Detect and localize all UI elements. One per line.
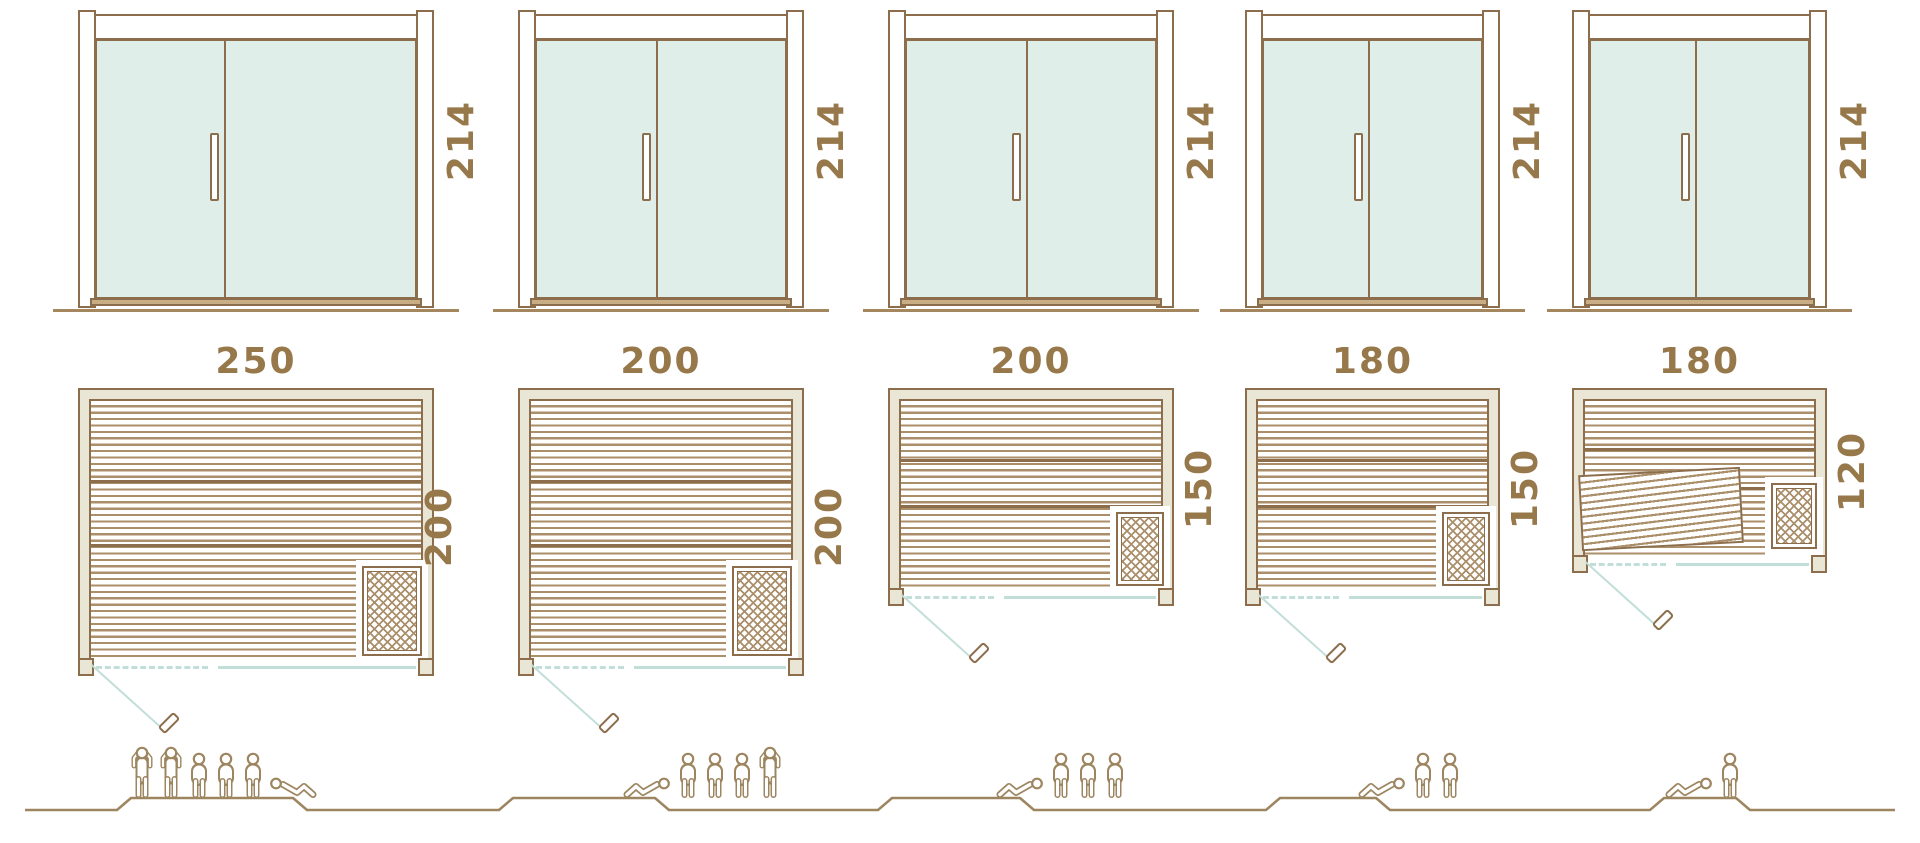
door-swing-line	[91, 664, 165, 731]
plan-width-label: 200	[518, 344, 804, 380]
door-opening-dashed-line	[96, 666, 208, 669]
door-handle-plan-icon	[1652, 609, 1675, 632]
ground-line	[863, 309, 1199, 312]
door-handle-icon	[1354, 133, 1363, 201]
plan-width-label: 250	[78, 344, 434, 380]
door-elevation-4	[1245, 10, 1500, 308]
ground-line	[493, 309, 829, 312]
heater-icon	[1442, 512, 1490, 586]
glass-door-leaf	[907, 41, 1028, 297]
door-frame-right	[416, 10, 434, 308]
capacity-group-2	[627, 748, 778, 795]
lying-person-icon	[271, 779, 313, 795]
plan-depth-label: 150	[1508, 448, 1544, 529]
sitting-person-icon	[1725, 754, 1735, 795]
door-frame-right	[1156, 10, 1174, 308]
glass-front	[1263, 40, 1482, 298]
heater-icon	[1116, 512, 1164, 586]
door-sill	[90, 298, 422, 306]
door-opening-dashed-line	[906, 596, 994, 599]
door-header	[1588, 14, 1811, 40]
door-height-label: 214	[1184, 100, 1220, 181]
sitting-person-icon	[1418, 754, 1428, 795]
ground-line	[1220, 309, 1525, 312]
heater-icon	[362, 566, 422, 656]
plan-depth-label: 200	[812, 486, 848, 567]
door-sill	[1584, 298, 1815, 306]
door-swing-line	[1258, 594, 1332, 661]
lying-person-icon	[1669, 779, 1711, 795]
door-swing-line	[901, 594, 975, 661]
door-handle-plan-icon	[968, 642, 991, 665]
door-frame-left	[1245, 10, 1263, 308]
sitting-person-icon	[1110, 754, 1120, 795]
plan-width-label: 180	[1245, 344, 1500, 380]
wall-foot-right	[788, 658, 804, 676]
standing-person-icon	[163, 748, 179, 795]
sitting-person-icon	[1056, 754, 1066, 795]
sitting-person-icon	[1445, 754, 1455, 795]
sitting-person-icon	[710, 754, 720, 795]
wall-foot-right	[1811, 555, 1827, 573]
door-height-label: 214	[814, 100, 850, 181]
door-height-label: 214	[444, 100, 480, 181]
glass-front	[906, 40, 1156, 298]
floor-plan-5	[1572, 388, 1827, 557]
heater-icon	[1771, 483, 1817, 549]
door-sill	[900, 298, 1162, 306]
glass-front	[96, 40, 416, 298]
standing-person-icon	[762, 748, 778, 795]
tilted-bench	[1578, 467, 1744, 551]
door-elevation-5	[1572, 10, 1827, 308]
door-header	[904, 14, 1158, 40]
door-handle-plan-icon	[1325, 642, 1348, 665]
plan-depth-label: 150	[1182, 448, 1218, 529]
plan-width-label: 200	[888, 344, 1174, 380]
capacity-group-1	[134, 748, 313, 795]
door-elevation-1	[78, 10, 434, 308]
sitting-person-icon	[683, 754, 693, 795]
capacity-group-4	[1362, 754, 1455, 795]
door-handle-icon	[642, 133, 651, 201]
plan-depth-label: 120	[1835, 431, 1871, 512]
door-opening-dashed-line	[1590, 563, 1666, 566]
plan-width-label: 180	[1572, 344, 1827, 380]
door-header	[94, 14, 418, 40]
door-frame-right	[1809, 10, 1827, 308]
capacity-group-5	[1669, 754, 1735, 795]
ground-line	[53, 309, 459, 312]
door-frame-right	[1482, 10, 1500, 308]
door-opening-dashed-line	[1263, 596, 1339, 599]
door-height-label: 214	[1837, 100, 1873, 181]
glass-front-line	[1004, 596, 1156, 599]
lying-person-icon	[627, 779, 669, 795]
lying-person-icon	[1000, 779, 1042, 795]
standing-person-icon	[134, 748, 150, 795]
sitting-person-icon	[1083, 754, 1093, 795]
wall-foot-right	[1484, 588, 1500, 606]
sitting-person-icon	[194, 754, 204, 795]
glass-door-leaf	[97, 41, 226, 297]
glass-front-line	[634, 666, 786, 669]
door-elevation-2	[518, 10, 804, 308]
wall-foot-right	[1158, 588, 1174, 606]
door-swing-line	[531, 664, 605, 731]
door-sill	[1257, 298, 1488, 306]
plan-depth-label: 200	[422, 486, 458, 567]
door-handle-plan-icon	[158, 712, 181, 735]
sitting-person-icon	[221, 754, 231, 795]
glass-front-line	[1349, 596, 1482, 599]
ground-profile-line	[25, 798, 1895, 810]
door-handle-plan-icon	[598, 712, 621, 735]
sauna-size-diagram: 214 250 200 214 200 200	[0, 0, 1920, 843]
door-handle-icon	[210, 133, 219, 201]
door-opening-dashed-line	[536, 666, 624, 669]
door-frame-left	[518, 10, 536, 308]
capacity-group-3	[1000, 754, 1120, 795]
door-frame-right	[786, 10, 804, 308]
wall-foot-right	[418, 658, 434, 676]
glass-front-line	[1676, 563, 1809, 566]
door-frame-left	[78, 10, 96, 308]
door-elevation-3	[888, 10, 1174, 308]
door-swing-line	[1585, 561, 1659, 628]
capacity-pictograms	[0, 740, 1920, 843]
glass-front-line	[218, 666, 416, 669]
door-frame-left	[1572, 10, 1590, 308]
glass-front	[536, 40, 786, 298]
door-header	[534, 14, 788, 40]
lying-person-icon	[1362, 779, 1404, 795]
sitting-person-icon	[737, 754, 747, 795]
door-handle-icon	[1012, 133, 1021, 201]
floor-plan-2	[518, 388, 804, 660]
floor-plan-4	[1245, 388, 1500, 590]
floor-plan-1	[78, 388, 434, 660]
door-handle-icon	[1681, 133, 1690, 201]
ground-line	[1547, 309, 1852, 312]
sitting-person-icon	[248, 754, 258, 795]
floor-plan-3	[888, 388, 1174, 590]
door-sill	[530, 298, 792, 306]
glass-front	[1590, 40, 1809, 298]
glass-door-leaf	[537, 41, 658, 297]
heater-icon	[732, 566, 792, 656]
door-header	[1261, 14, 1484, 40]
door-frame-left	[888, 10, 906, 308]
door-height-label: 214	[1510, 100, 1546, 181]
